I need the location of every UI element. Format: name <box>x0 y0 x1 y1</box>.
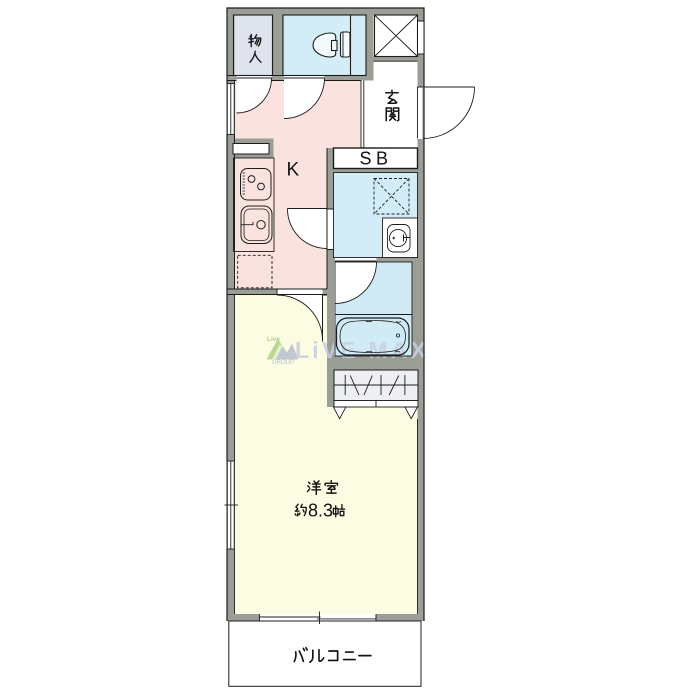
svg-text:8.3: 8.3 <box>308 501 333 521</box>
svg-text:K: K <box>287 160 300 181</box>
svg-text:Live: Live <box>267 336 280 343</box>
svg-text:SB: SB <box>360 149 393 169</box>
svg-text:GROUP: GROUP <box>272 360 294 366</box>
